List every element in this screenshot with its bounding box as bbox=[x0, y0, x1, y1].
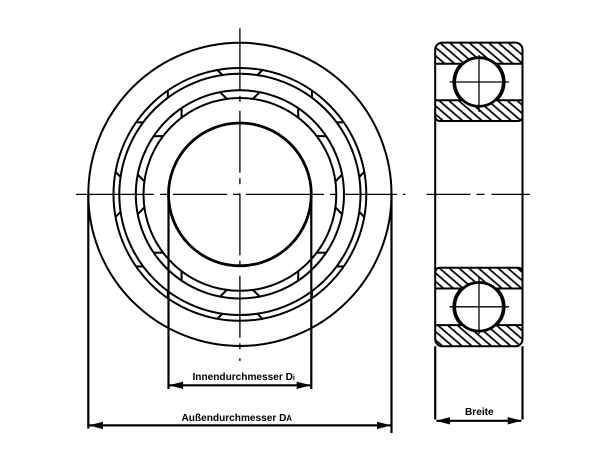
svg-text:Breite: Breite bbox=[465, 407, 494, 418]
svg-text:Außendurchmesser DA: Außendurchmesser DA bbox=[182, 413, 293, 424]
svg-text:Innendurchmesser Di: Innendurchmesser Di bbox=[193, 372, 296, 383]
